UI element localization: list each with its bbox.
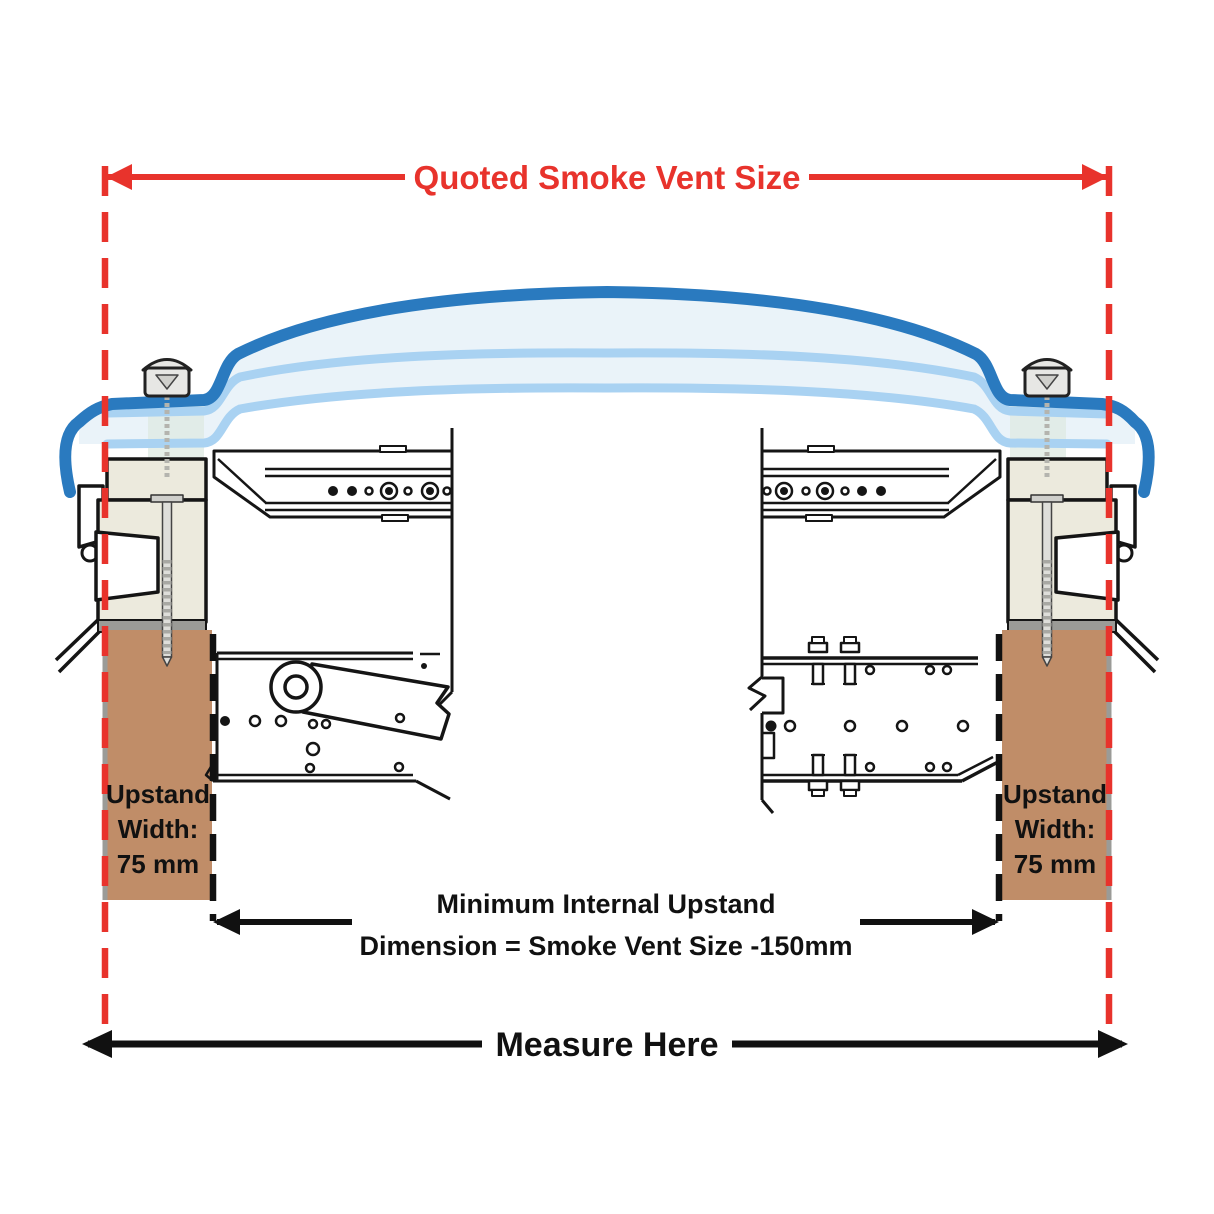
upstand-right-line3: 75 mm	[1014, 849, 1096, 879]
internal-dimension-line2: Dimension = Smoke Vent Size -150mm	[360, 931, 853, 961]
upstand-left-line1: Upstand	[106, 779, 210, 809]
arrow-head-left	[82, 1030, 112, 1058]
bolt	[809, 637, 827, 684]
measure-here-dimension: Measure Here	[82, 1020, 1128, 1068]
upstand-label-left: Upstand Width: 75 mm	[106, 779, 210, 879]
dome-glazing-fill	[79, 292, 1135, 444]
break-bracket-small	[762, 733, 774, 758]
plate-rivet	[220, 716, 230, 726]
detail-dot	[421, 663, 427, 669]
arrow-head-right	[1098, 1030, 1128, 1058]
plate-hole	[250, 716, 260, 726]
arrow-head-left	[213, 909, 240, 935]
rail-rivet	[347, 486, 357, 496]
slide-rail-group	[214, 428, 452, 521]
web-hole	[785, 721, 795, 731]
measure-here-label: Measure Here	[495, 1026, 718, 1064]
plate-hole	[395, 763, 403, 771]
upstand-label-right: Upstand Width: 75 mm	[1003, 779, 1107, 879]
hinge-plate-bottom-diag	[416, 781, 450, 799]
upstand-right-line2: Width:	[1015, 814, 1096, 844]
arrow-head-right	[1082, 164, 1108, 190]
rail-rivet	[328, 486, 338, 496]
upstand-right-line1: Upstand	[1003, 779, 1107, 809]
smoke-vent-cross-section-diagram: Quoted Smoke Vent Size Upstand Width: 75…	[0, 0, 1214, 1214]
chord-hole	[866, 666, 874, 674]
rail-body	[214, 451, 452, 517]
bolt	[841, 637, 859, 684]
web-hole	[958, 721, 968, 731]
break-zigzag	[749, 676, 765, 710]
frame-upper-profile	[107, 459, 206, 500]
quoted-size-label: Quoted Smoke Vent Size	[414, 159, 801, 196]
rail-tab-bottom	[382, 515, 408, 521]
screw-shaft	[163, 502, 172, 657]
rail-tab-top	[380, 446, 406, 452]
chord-hole	[866, 763, 874, 771]
internal-dimension: Minimum Internal Upstand Dimension = Smo…	[213, 884, 999, 968]
upstand-left-line3: 75 mm	[117, 849, 199, 879]
plate-hole	[322, 720, 330, 728]
web-hole	[845, 721, 855, 731]
screw-washer	[151, 495, 183, 502]
slide-rail-group-right	[762, 428, 1000, 521]
arrow-head-left	[106, 164, 132, 190]
center-cut-hook-right	[762, 800, 773, 813]
smoke-vent-diagram-page: Quoted Smoke Vent Size Upstand Width: 75…	[0, 0, 1214, 1214]
arrow-head-right	[972, 909, 999, 935]
rail-grommet	[422, 483, 438, 499]
plate-hole	[306, 764, 314, 772]
quoted-size-dimension: Quoted Smoke Vent Size	[106, 153, 1108, 201]
plate-hole	[276, 716, 286, 726]
web-hole	[897, 721, 907, 731]
chord-hole	[943, 666, 951, 674]
hinge-pivot-hole	[285, 676, 307, 698]
chord-hole	[943, 763, 951, 771]
upstand-left-line2: Width:	[118, 814, 199, 844]
chord-hole	[926, 763, 934, 771]
web-rivet	[766, 721, 777, 732]
rail-grommet	[381, 483, 397, 499]
plate-hole	[309, 720, 317, 728]
internal-dimension-line1: Minimum Internal Upstand	[436, 889, 775, 919]
plate-hole	[307, 743, 319, 755]
chord-hole	[926, 666, 934, 674]
